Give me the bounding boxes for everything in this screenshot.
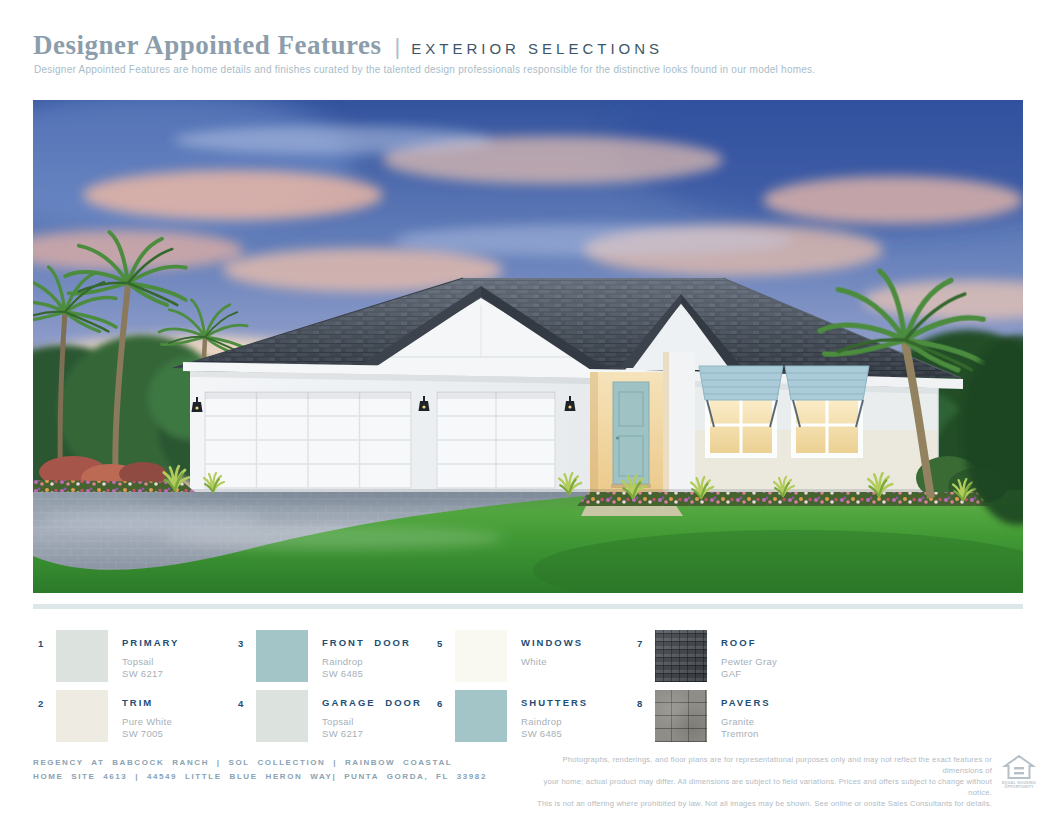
window-right: [785, 366, 869, 458]
swatch-number: 8: [637, 698, 642, 709]
swatch-color-name: White: [521, 656, 583, 668]
garage-door-double: [205, 392, 411, 488]
color-chip: [455, 690, 507, 742]
color-chip: [56, 690, 108, 742]
swatch-label: TRIM: [122, 697, 172, 708]
disclaimer-line-2: your home; actual product may differ. Al…: [528, 776, 992, 798]
disclaimer-line-1: Photographs, renderings, and floor plans…: [528, 754, 992, 776]
swatch-number: 3: [238, 638, 243, 649]
swatch-color-name: Raindrop: [322, 656, 411, 668]
front-door: [613, 382, 649, 484]
community-info: REGENCY AT BABCOCK RANCH | SOL COLLECTIO…: [33, 756, 487, 784]
window-left: [699, 366, 783, 458]
entry: [590, 372, 663, 492]
swatch-color-code: SW 6217: [322, 728, 422, 740]
designer-features-page: Designer Appointed Features | EXTERIOR S…: [0, 0, 1055, 815]
swatch-color-code: GAF: [721, 668, 777, 680]
swatch-label: PAVERS: [721, 697, 771, 708]
swatch-number: 4: [238, 698, 243, 709]
foundation-shadow: [190, 489, 938, 493]
swatch-number: 1: [38, 638, 43, 649]
disclaimer-line-3: This is not an offering where prohibited…: [528, 798, 992, 809]
swatch-front-door: 3 FRONT DOOR Raindrop SW 6485: [238, 630, 430, 684]
swatch-windows: 5 WINDOWS White: [437, 630, 629, 684]
eho-label-2: OPPORTUNITY: [1004, 785, 1034, 789]
swatch-number: 6: [437, 698, 442, 709]
swatch-number: 5: [437, 638, 442, 649]
swatch-color-code: Tremron: [721, 728, 771, 740]
section-title: EXTERIOR SELECTIONS: [411, 40, 663, 57]
swatch-shutters: 6 SHUTTERS Raindrop SW 6485: [437, 690, 629, 744]
swatch-color-code: SW 6485: [322, 668, 411, 680]
color-chip: [256, 630, 308, 682]
swatch-label: FRONT DOOR: [322, 637, 411, 648]
swatch-label: ROOF: [721, 637, 777, 648]
community-line-1: REGENCY AT BABCOCK RANCH | SOL COLLECTIO…: [33, 756, 487, 770]
legal-disclaimer: Photographs, renderings, and floor plans…: [528, 754, 992, 809]
swatch-label: WINDOWS: [521, 637, 583, 648]
title-divider: |: [395, 34, 401, 60]
swatch-label: SHUTTERS: [521, 697, 588, 708]
swatch-garage-door: 4 GARAGE DOOR Topsail SW 6217: [238, 690, 430, 744]
swatch-color-name: Raindrop: [521, 716, 588, 728]
color-chip: [56, 630, 108, 682]
swatch-trim: 2 TRIM Pure White SW 7005: [38, 690, 230, 744]
swatch-color-code: SW 7005: [122, 728, 172, 740]
swatch-roof: 7 ROOF Pewter Gray GAF: [637, 630, 829, 684]
swatch-color-name: Granite: [721, 716, 771, 728]
swatch-primary: 1 PRIMARY Topsail SW 6217: [38, 630, 230, 684]
swatch-label: PRIMARY: [122, 637, 179, 648]
swatch-pavers: 8 PAVERS Granite Tremron: [637, 690, 829, 744]
entry-pillar: [663, 352, 695, 492]
swatch-color-code: SW 6485: [521, 728, 588, 740]
swatch-number: 7: [637, 638, 642, 649]
paver-chip: [655, 690, 707, 742]
section-divider: [33, 604, 1023, 609]
swatch-label: GARAGE DOOR: [322, 697, 422, 708]
swatch-color-name: Topsail: [322, 716, 422, 728]
color-chip: [455, 630, 507, 682]
page-header: Designer Appointed Features | EXTERIOR S…: [33, 30, 663, 61]
page-description: Designer Appointed Features are home det…: [34, 64, 815, 75]
roof-shingle-chip: [655, 630, 707, 682]
color-chip: [256, 690, 308, 742]
community-line-2: HOME SITE 4613 | 44549 LITTLE BLUE HERON…: [33, 770, 487, 784]
swatch-number: 2: [38, 698, 43, 709]
garage-door-single: [437, 392, 555, 488]
swatch-color-name: Pure White: [122, 716, 172, 728]
swatch-color-name: Topsail: [122, 656, 179, 668]
exterior-rendering-image: [33, 100, 1023, 593]
equal-housing-opportunity-logo: EQUAL HOUSING OPPORTUNITY: [1001, 753, 1037, 789]
swatch-color-code: SW 6217: [122, 668, 179, 680]
swatch-color-name: Pewter Gray: [721, 656, 777, 668]
page-title: Designer Appointed Features: [33, 30, 382, 61]
